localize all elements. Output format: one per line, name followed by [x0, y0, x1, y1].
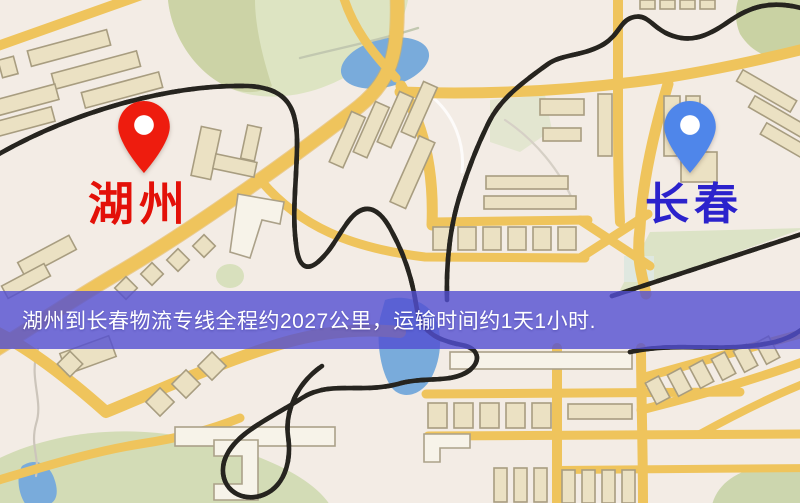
destination-pin-icon — [662, 101, 718, 173]
route-map-image: 湖州 长春 湖州到长春物流专线全程约2027公里，运输时间约1天1小时. — [0, 0, 800, 503]
origin-pin-shape — [118, 101, 170, 173]
origin-city-label: 湖州 — [88, 181, 190, 227]
destination-pin-shape — [664, 101, 716, 173]
origin-pin-icon — [116, 101, 172, 173]
map-background — [0, 0, 800, 503]
destination-city-label: 长春 — [645, 183, 743, 227]
route-info-banner: 湖州到长春物流专线全程约2027公里，运输时间约1天1小时. — [0, 291, 800, 349]
route-info-text: 湖州到长春物流专线全程约2027公里，运输时间约1天1小时. — [22, 305, 596, 335]
